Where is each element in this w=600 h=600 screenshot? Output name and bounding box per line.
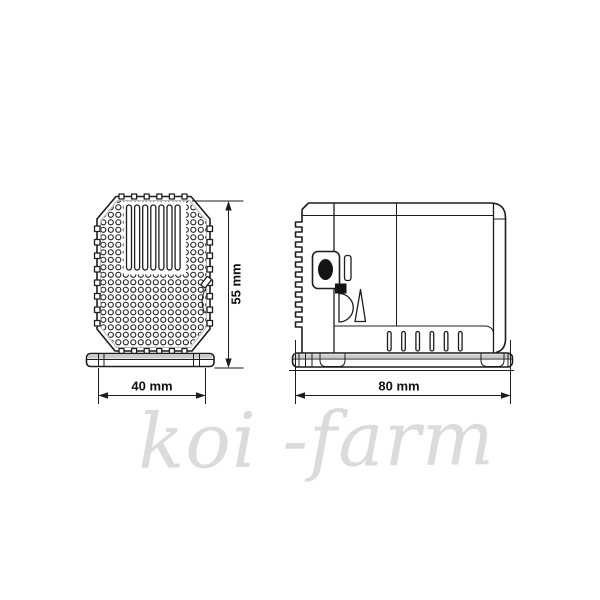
flow-adjuster (313, 252, 366, 323)
side-view-drawing (289, 203, 514, 371)
koi-farm-watermark: koi -farm (138, 396, 496, 483)
front-width-dimension-label: 40 mm (131, 379, 172, 394)
pump-dimension-drawing: 55 mm 40 mm 80 mm (0, 0, 600, 600)
side-width-dimension-label: 80 mm (378, 379, 419, 394)
adjuster-block (335, 284, 347, 294)
height-dimension-label: 55 mm (229, 263, 244, 304)
grille-slots (127, 205, 181, 270)
pump-technical-drawing-page: 55 mm 40 mm 80 mm koi -farm (0, 0, 600, 600)
side-vent-slots (388, 332, 463, 352)
front-base-plate (87, 354, 215, 367)
adjuster-pointer (355, 290, 366, 322)
adjuster-dial (339, 294, 353, 323)
adjuster-slot (345, 256, 352, 281)
side-base-plate (289, 353, 514, 371)
knob (318, 259, 333, 280)
front-view-drawing (87, 194, 215, 367)
side-lower-seam (334, 326, 494, 352)
side-serrated-edge (296, 210, 303, 353)
